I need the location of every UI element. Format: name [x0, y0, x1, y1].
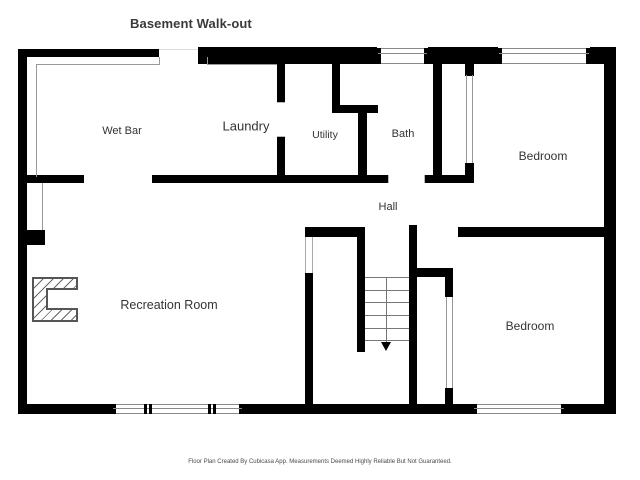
- stair-step-line: [365, 302, 409, 303]
- room-label-bath: Bath: [392, 128, 415, 140]
- bedroom2-closet-front-line: [446, 297, 447, 388]
- room-label-utility: Utility: [312, 129, 338, 141]
- wall-left-block: [27, 230, 45, 245]
- wall-bedroom2-left-lower: [445, 388, 453, 404]
- stair-step-line: [365, 340, 409, 341]
- stair-step-line: [365, 315, 409, 316]
- window-end-cap: [498, 48, 502, 64]
- window-mid-line: [499, 53, 589, 54]
- room-label-recreation: Recreation Room: [120, 298, 217, 312]
- staircase: [365, 237, 409, 353]
- wall-top-left: [18, 49, 159, 57]
- window-divider: [149, 404, 152, 414]
- utility-door-jamb-top: [277, 102, 285, 103]
- room-label-bedroom-1: Bedroom: [519, 149, 568, 163]
- footer-disclaimer: Floor Plan Created By Cubicasa App. Meas…: [188, 459, 451, 465]
- stair-step-line: [365, 328, 409, 329]
- plan-title: Basement Walk-out: [130, 16, 252, 31]
- ceiling-line-wetbar-vertical: [36, 64, 37, 177]
- wall-niche-edge-line: [42, 183, 43, 230]
- room-label-hall: Hall: [379, 201, 398, 213]
- bedroom2-closet-front-line: [452, 297, 453, 388]
- wall-bedroom1-left-bottom-stub: [465, 163, 474, 183]
- stair-run-line: [386, 277, 387, 343]
- wall-bedroom2-left-upper: [445, 268, 453, 297]
- wall-hall-recreation-bar: [305, 227, 365, 237]
- wall-utility-bath-lower: [358, 105, 367, 183]
- room-label-laundry: Laundry: [223, 119, 270, 134]
- window-divider: [208, 404, 211, 414]
- window-end-cap: [377, 48, 381, 64]
- wall-bedroom1-left-top-stub: [465, 60, 474, 76]
- window-end-cap: [586, 48, 590, 64]
- room-label-wet-bar: Wet Bar: [102, 125, 142, 137]
- wall-bath-right: [433, 60, 442, 183]
- window-bottom-bedroom2: [473, 404, 565, 414]
- wall-laundry-utility-upper: [277, 57, 285, 102]
- window-end-cap: [424, 48, 428, 64]
- ceiling-line-wetbar-horizontal: [36, 64, 159, 65]
- window-top-bedroom1: [498, 48, 590, 64]
- wall-utility-bath-jog: [332, 105, 378, 113]
- stair-step-line: [365, 277, 409, 278]
- wall-laundry-utility-lower: [277, 137, 285, 183]
- wall-stair-right: [409, 225, 417, 404]
- window-bottom-recreation: [112, 404, 243, 414]
- stair-step-line: [365, 290, 409, 291]
- window-mid-line: [378, 53, 427, 54]
- wall-hall-top-1: [18, 175, 84, 183]
- wall-bottom-mid: [243, 404, 473, 414]
- window-mid-line: [474, 408, 564, 409]
- wall-bottom-left: [18, 404, 112, 414]
- window-divider: [144, 404, 147, 414]
- wall-utility-bath-upper: [332, 60, 340, 106]
- window-top-bath: [377, 48, 428, 64]
- wall-bedroom1-bottom: [458, 227, 616, 237]
- ceiling-line-wetbar-connector: [159, 57, 160, 65]
- wall-left: [18, 49, 27, 414]
- bath-door-jamb-left: [388, 175, 389, 183]
- stairs-down-arrow-icon: [381, 342, 391, 351]
- window-mid-line: [113, 408, 242, 409]
- floor-plan: Basement Walk-out Floor Plan Created By …: [0, 0, 640, 480]
- room-label-bedroom-2: Bedroom: [506, 319, 555, 333]
- wall-stair-left: [357, 237, 365, 352]
- fireplace-opening: [46, 288, 78, 310]
- wall-recreation-right: [305, 273, 313, 404]
- wall-hall-top-2: [152, 175, 388, 183]
- wall-bottom-right: [565, 404, 616, 414]
- bedroom1-closet-front-line: [472, 75, 473, 165]
- recreation-door-jamb: [312, 237, 313, 273]
- bedroom1-closet-front-line: [466, 75, 467, 165]
- fireplace-icon: [32, 277, 78, 322]
- wall-top-mid: [198, 47, 377, 64]
- bath-door-jamb-right: [424, 175, 425, 183]
- ceiling-line-laundry-horizontal: [207, 64, 277, 65]
- utility-door-jamb-bottom: [277, 136, 285, 137]
- top-opening-edge: [159, 49, 198, 50]
- recreation-door-jamb: [305, 237, 306, 273]
- window-divider: [213, 404, 216, 414]
